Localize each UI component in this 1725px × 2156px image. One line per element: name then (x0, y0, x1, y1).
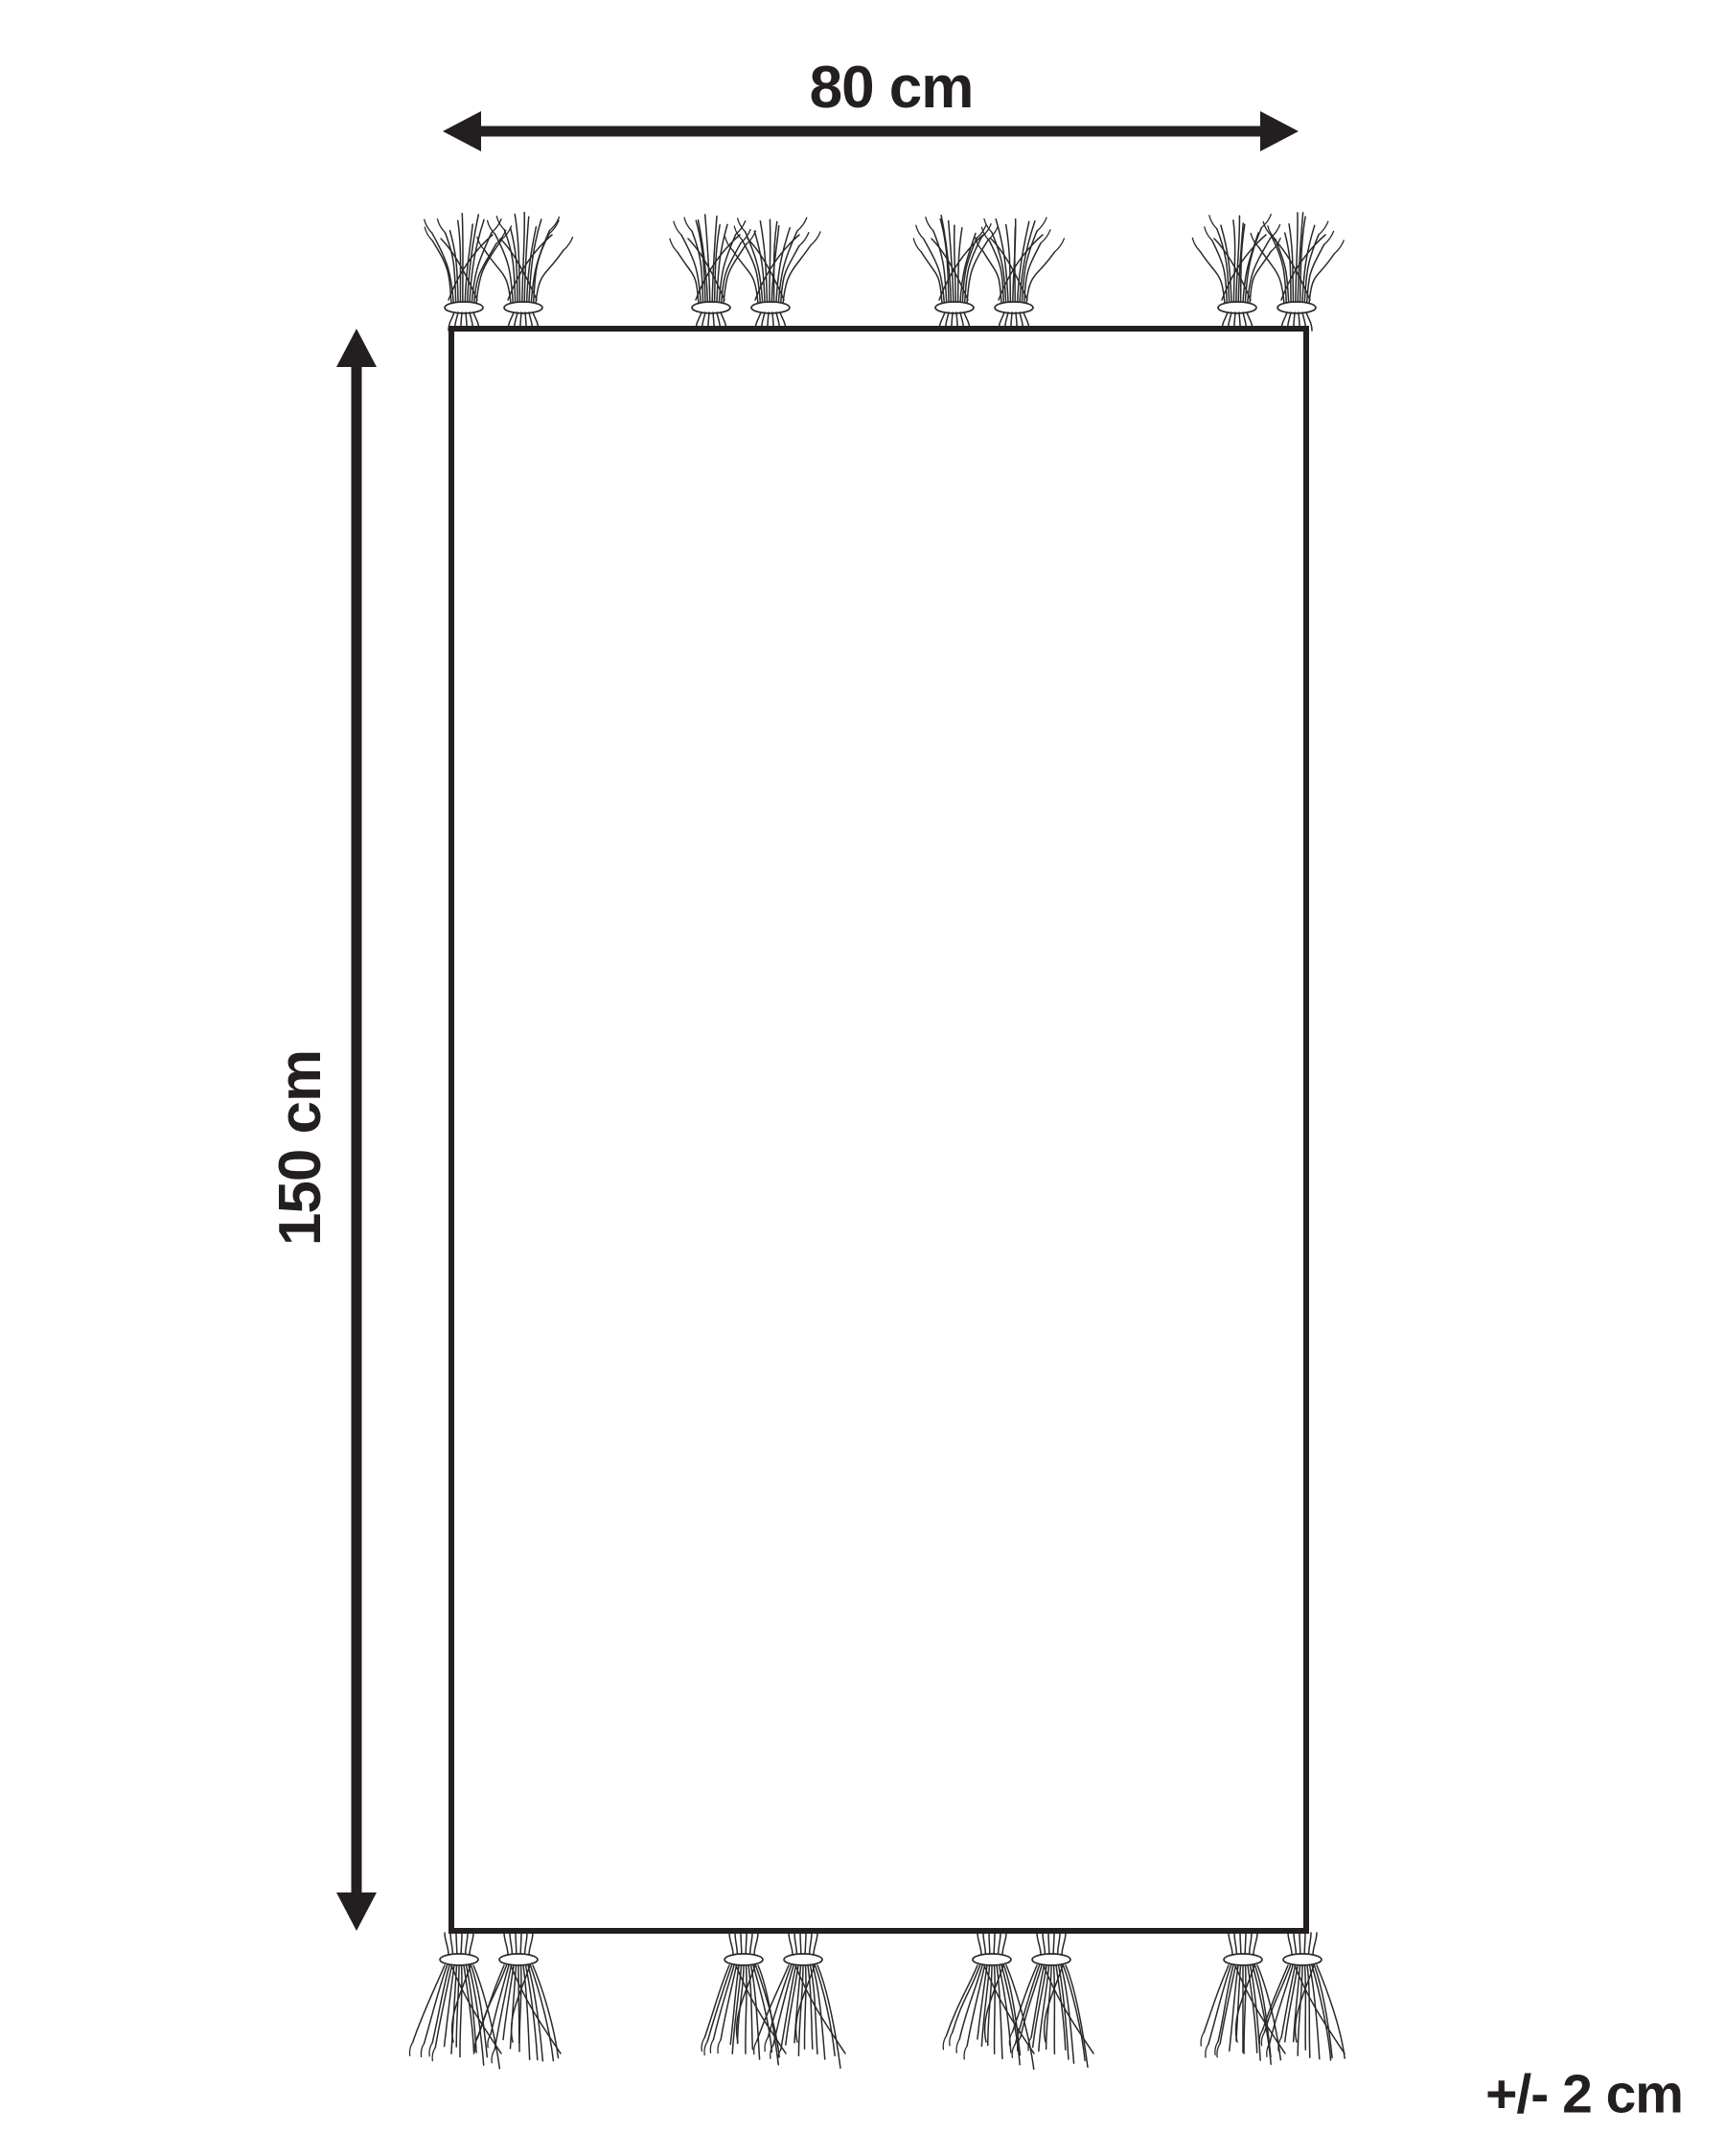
tassel-strand (456, 1933, 457, 1955)
tassel-collar (935, 302, 974, 313)
tassel-strand (1053, 1933, 1054, 1955)
tassel-strand (1299, 1933, 1300, 1955)
tassel-strand (964, 2046, 967, 2059)
tassel-strand (462, 214, 463, 304)
tassel-collar (504, 302, 542, 313)
tassel (425, 214, 512, 331)
tassel-collar (1283, 1954, 1322, 1965)
tassel (943, 1933, 1034, 2069)
tassel-strand (810, 1933, 812, 1955)
tassel-strand (1334, 241, 1344, 254)
tassel-strand (1250, 1933, 1252, 1955)
tassel-strand (754, 1933, 758, 1955)
tassel-strand (1217, 2044, 1220, 2057)
tassel-strand (913, 239, 921, 252)
tassel-strand (750, 1933, 752, 1955)
tassel-strand (805, 1933, 806, 1955)
tassel-strand (770, 219, 770, 304)
tassel-strand (670, 239, 678, 252)
height-dimension-arrow (336, 329, 377, 1931)
tassel-strand (1240, 1933, 1241, 1955)
tassel-collar (1277, 302, 1316, 313)
tassel-strand (1054, 1965, 1055, 2053)
tassel-strand (563, 238, 572, 251)
tassel-strand (1058, 1933, 1060, 1955)
tassel-strand (977, 1933, 981, 1955)
tassel-strand (1253, 1933, 1257, 1955)
tassel-strand (460, 1965, 462, 2056)
tassel-strand (516, 1933, 517, 1955)
tassel-collar (1218, 302, 1256, 313)
tassel-strand (470, 1933, 473, 1955)
tolerance-label: +/- 2 cm (1485, 2068, 1683, 2122)
tassel-strand (1305, 1965, 1306, 2050)
tassel-strand (684, 218, 692, 231)
tassel-strand (1041, 230, 1050, 243)
tassel (670, 215, 755, 331)
tassel-strand (746, 1933, 747, 1955)
tassel-strand (994, 1933, 995, 1955)
tassel-strand (1192, 238, 1200, 251)
tassel-collar (995, 302, 1033, 313)
tassel-strand (1288, 1933, 1292, 1955)
tassel-strand (1296, 213, 1298, 304)
tassel-strand (450, 1933, 452, 1955)
tassel-strand (983, 251, 1001, 304)
tassel-strand (946, 1965, 977, 2036)
tassel (1251, 213, 1344, 331)
tassel-strand (1263, 221, 1271, 235)
tassel-strand (746, 1965, 747, 2053)
tassel-strand (729, 1933, 733, 1955)
tassel-strand (954, 225, 955, 304)
tassel-strand (492, 219, 501, 233)
tassel-strand (916, 225, 924, 239)
tassel-strand (765, 2038, 768, 2052)
tassel-strand (1201, 2032, 1204, 2046)
tassel-strand (1037, 218, 1046, 231)
tassel-strand (510, 1933, 512, 1955)
tassel-strand (1294, 1933, 1296, 1955)
tassel-strand (1245, 1933, 1246, 1955)
tassel-strand (811, 232, 820, 245)
width-arrow-left-head-icon (443, 111, 481, 151)
tassel-collar (751, 302, 790, 313)
tassel-strand (931, 239, 968, 300)
tassel-strand (804, 1965, 806, 2049)
tassel (474, 1933, 561, 2063)
tassel (477, 213, 573, 331)
tassel-strand (536, 251, 563, 304)
tassel-strand (678, 252, 699, 304)
tassel-strand (504, 1933, 508, 1955)
tassel-strand (520, 1933, 521, 1955)
tassel-strand (926, 218, 933, 231)
tassel-strand (496, 217, 504, 230)
tassel-strand (995, 1965, 996, 2053)
tassel-strand (1206, 2044, 1208, 2057)
tassel-strand (953, 1965, 980, 2032)
rug-dimension-diagram: 80 cm 150 cm +/- 2 cm (0, 0, 1725, 2156)
tassel-strand (1209, 216, 1217, 229)
tassel (1259, 1933, 1345, 2060)
tassel-strand (999, 1933, 1000, 1955)
tassel-strand (921, 252, 942, 304)
width-arrow-right-head-icon (1260, 111, 1299, 151)
tassel-strand (674, 221, 681, 235)
tassel-strand (529, 1933, 533, 1955)
tassel-strand (718, 2040, 721, 2053)
tassel-strand (988, 226, 998, 240)
tassel-strand (956, 2039, 959, 2053)
tassel-strand (735, 1933, 737, 1955)
height-dimension-label: 150 cm (271, 1050, 331, 1246)
width-dimension-label: 80 cm (810, 58, 974, 118)
tassel-strand (1062, 1933, 1066, 1955)
tassel-strand (1244, 1965, 1246, 2053)
tassel-strand (789, 1933, 793, 1955)
tassel (976, 218, 1065, 331)
tassel-strand (1026, 252, 1054, 304)
tassel-strand (800, 1933, 801, 1955)
tassel-strand (1012, 2044, 1015, 2057)
tassel-strand (437, 219, 445, 233)
tassel-strand (429, 2043, 432, 2056)
tassel-strand (1309, 1933, 1311, 1955)
tassel-strand (1002, 1933, 1006, 1955)
tassel-collar (445, 302, 483, 313)
tassel-strand (1229, 1933, 1232, 1955)
tassel (1201, 1933, 1285, 2064)
tassel-collar (784, 1954, 822, 1965)
tassel-strand (950, 2032, 953, 2046)
tassel-strand (519, 1965, 521, 2052)
tassel-strand (1037, 1933, 1041, 1955)
tassel-strand (525, 1933, 527, 1955)
height-arrow-up-head-icon (336, 329, 377, 367)
tassel-strand (1261, 215, 1271, 228)
tassel-collar (1224, 1954, 1262, 1965)
tassel-strand (797, 218, 807, 231)
tassel-strand (1313, 1933, 1317, 1955)
tassel-strand (1312, 1965, 1331, 2060)
tassel-strand (409, 2042, 412, 2055)
tassel-strand (432, 2048, 435, 2061)
tassel-collar (973, 1954, 1011, 1965)
tassel-collar (692, 302, 730, 313)
tassel-collar (724, 1954, 763, 1965)
tassel-collar (499, 1954, 538, 1965)
tassel-strand (741, 1933, 742, 1955)
tassel-strand (1214, 239, 1251, 300)
tassel-strand (461, 1933, 462, 1955)
tassel-strand (1309, 254, 1334, 304)
tassel-strand (983, 1933, 985, 1955)
tassel-strand (794, 1933, 796, 1955)
tassel (409, 1933, 501, 2069)
tassel-strand (704, 2042, 707, 2055)
tassel-strand (814, 1933, 817, 1955)
tassel-strand (799, 233, 809, 246)
top-tassel-fringe (425, 213, 1344, 331)
tassel-strand (710, 2039, 713, 2053)
tassel-strand (445, 1933, 448, 1955)
tassel-strand (492, 2050, 494, 2063)
rug-line-drawing (0, 0, 1725, 2156)
rug-outline (451, 329, 1306, 1931)
tassel-strand (1261, 2032, 1264, 2046)
tassel-collar (1032, 1954, 1070, 1965)
tassel-strand (1319, 221, 1328, 235)
tassel-strand (1043, 1933, 1045, 1955)
tassel-strand (1304, 1933, 1305, 1955)
tassel-strand (1324, 231, 1334, 244)
tassel (1009, 1933, 1093, 2067)
tassel-strand (1234, 1933, 1236, 1955)
tassel-strand (943, 2036, 946, 2050)
tassel-strand (1204, 1965, 1229, 2032)
tassel-strand (989, 1933, 990, 1955)
tassel-strand (1048, 1933, 1049, 1955)
tassel-strand (1270, 1965, 1293, 2043)
tassel-strand (421, 2043, 424, 2056)
tassel-strand (1205, 227, 1212, 241)
height-arrow-down-head-icon (336, 1892, 377, 1931)
tassel-strand (1233, 220, 1235, 304)
tassel-strand (754, 2041, 757, 2054)
tassel-strand (1054, 239, 1064, 252)
tassel (913, 216, 998, 331)
bottom-tassel-fringe (409, 1933, 1345, 2069)
tassel-collar (440, 1954, 478, 1965)
tassel-strand (466, 1933, 468, 1955)
